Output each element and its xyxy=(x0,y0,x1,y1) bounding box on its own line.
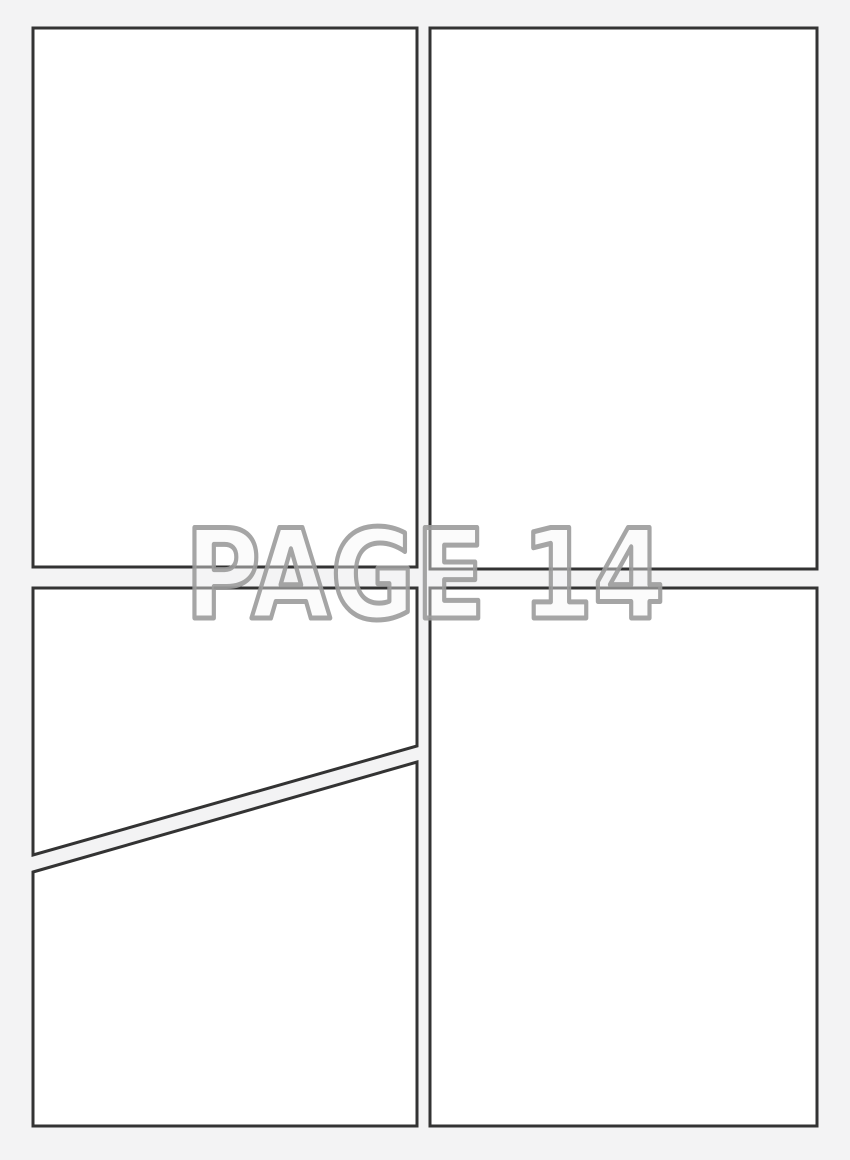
comic-page-template: PAGE 14 xyxy=(0,0,850,1160)
panel-top-left xyxy=(33,28,417,567)
page-number-label: PAGE 14 xyxy=(185,504,665,648)
panel-bottom-right xyxy=(430,588,817,1126)
page-canvas: PAGE 14 xyxy=(0,0,850,1160)
panel-top-right xyxy=(430,28,817,569)
